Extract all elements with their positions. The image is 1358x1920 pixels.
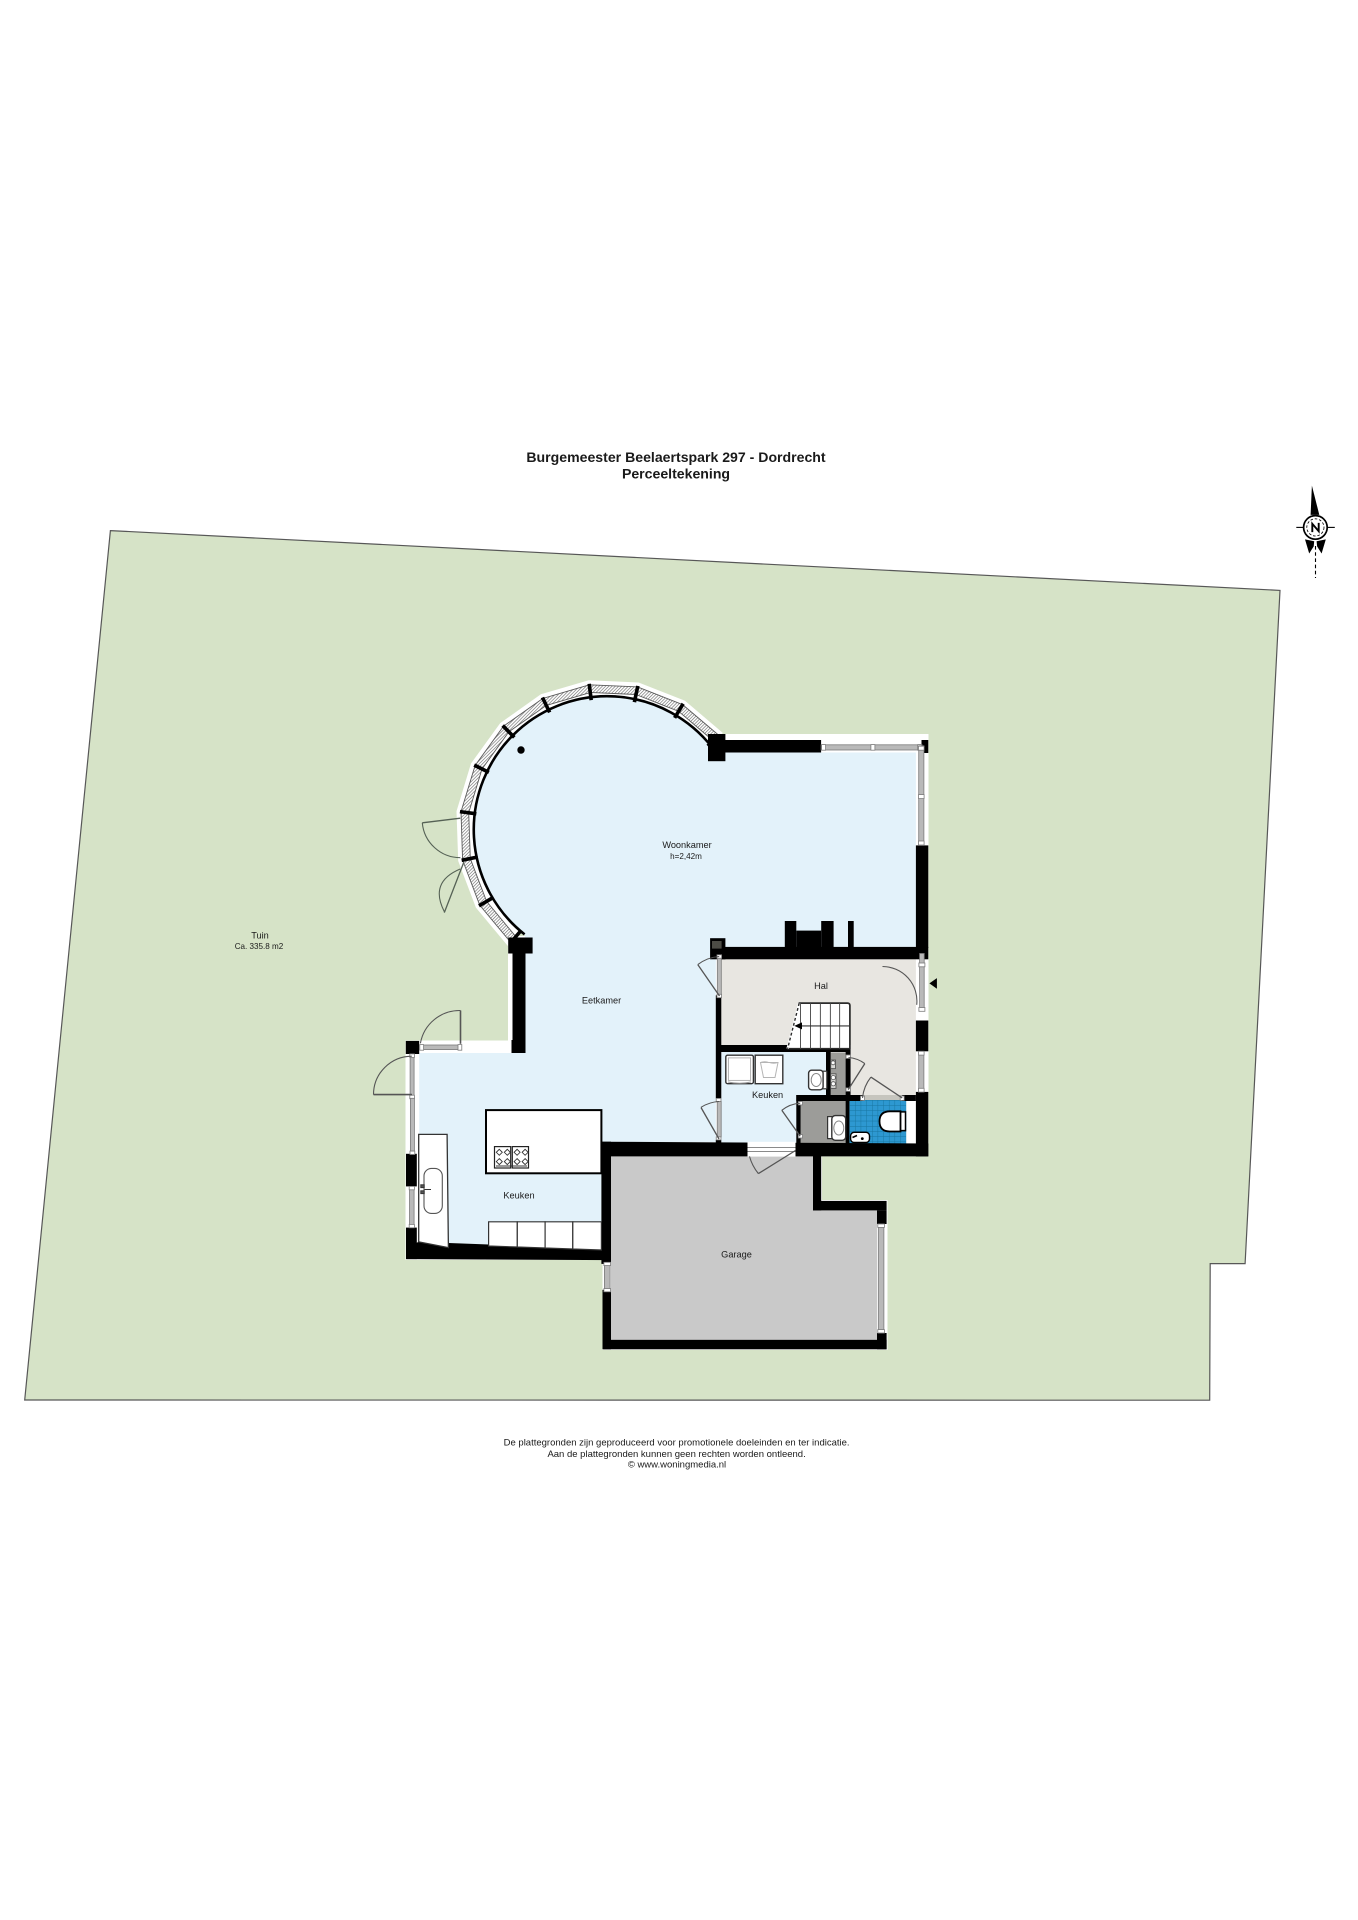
svg-text:Hal: Hal [814, 981, 828, 991]
svg-text:Woonkamer: Woonkamer [662, 840, 711, 850]
svg-text:Keuken: Keuken [752, 1090, 783, 1100]
svg-text:Burgemeester Beelaertspark 297: Burgemeester Beelaertspark 297 - Dordrec… [526, 449, 826, 465]
svg-text:h=2,42m: h=2,42m [670, 852, 702, 861]
svg-text:Keuken: Keuken [503, 1191, 534, 1201]
svg-text:Ca. 335.8 m2: Ca. 335.8 m2 [235, 942, 284, 951]
svg-text:Eetkamer: Eetkamer [582, 996, 621, 1006]
svg-text:Tuin: Tuin [251, 931, 269, 941]
svg-text:Aan de plattegronden kunnen ge: Aan de plattegronden kunnen geen rechten… [547, 1449, 805, 1460]
svg-text:De plattegronden zijn geproduc: De plattegronden zijn geproduceerd voor … [504, 1437, 850, 1448]
svg-text:Garage: Garage [721, 1250, 752, 1260]
svg-text:Perceeltekening: Perceeltekening [622, 466, 730, 482]
svg-text:© www.woningmedia.nl: © www.woningmedia.nl [628, 1460, 726, 1471]
